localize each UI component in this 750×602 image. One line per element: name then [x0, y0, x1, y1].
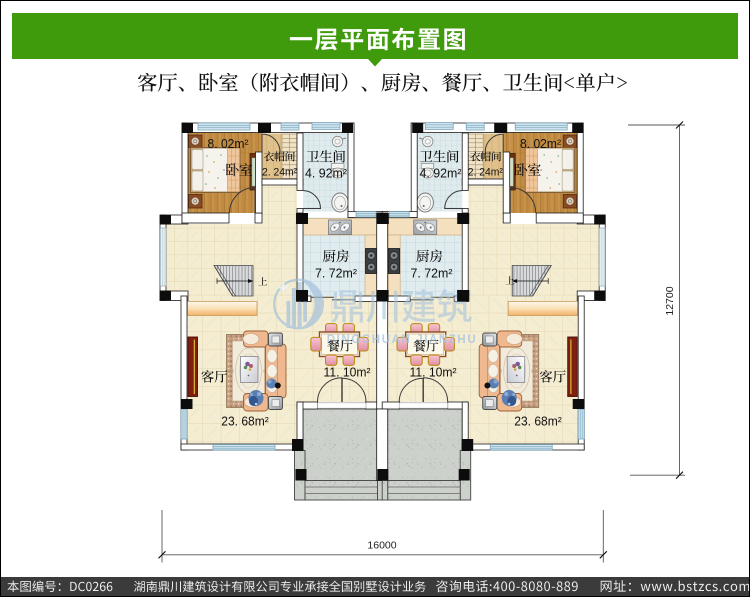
- svg-text:23. 68m²: 23. 68m²: [221, 414, 269, 429]
- svg-text:DINGCHUAN JIANZHU: DINGCHUAN JIANZHU: [327, 334, 478, 346]
- svg-text:8. 02m²: 8. 02m²: [520, 136, 562, 151]
- svg-text:4. 92m²: 4. 92m²: [305, 166, 348, 181]
- svg-text:7. 72m²: 7. 72m²: [411, 266, 454, 281]
- svg-text:11. 10m²: 11. 10m²: [324, 365, 372, 380]
- svg-text:2. 24m²: 2. 24m²: [262, 167, 297, 179]
- svg-text:23. 68m²: 23. 68m²: [514, 414, 562, 429]
- svg-text:7. 72m²: 7. 72m²: [315, 266, 358, 281]
- svg-text:8. 02m²: 8. 02m²: [208, 136, 250, 151]
- svg-text:11. 10m²: 11. 10m²: [410, 365, 458, 380]
- svg-text:4. 92m²: 4. 92m²: [420, 166, 463, 181]
- svg-text:2. 24m²: 2. 24m²: [468, 167, 503, 179]
- svg-text:16000: 16000: [367, 540, 396, 552]
- svg-text:12700: 12700: [664, 286, 676, 315]
